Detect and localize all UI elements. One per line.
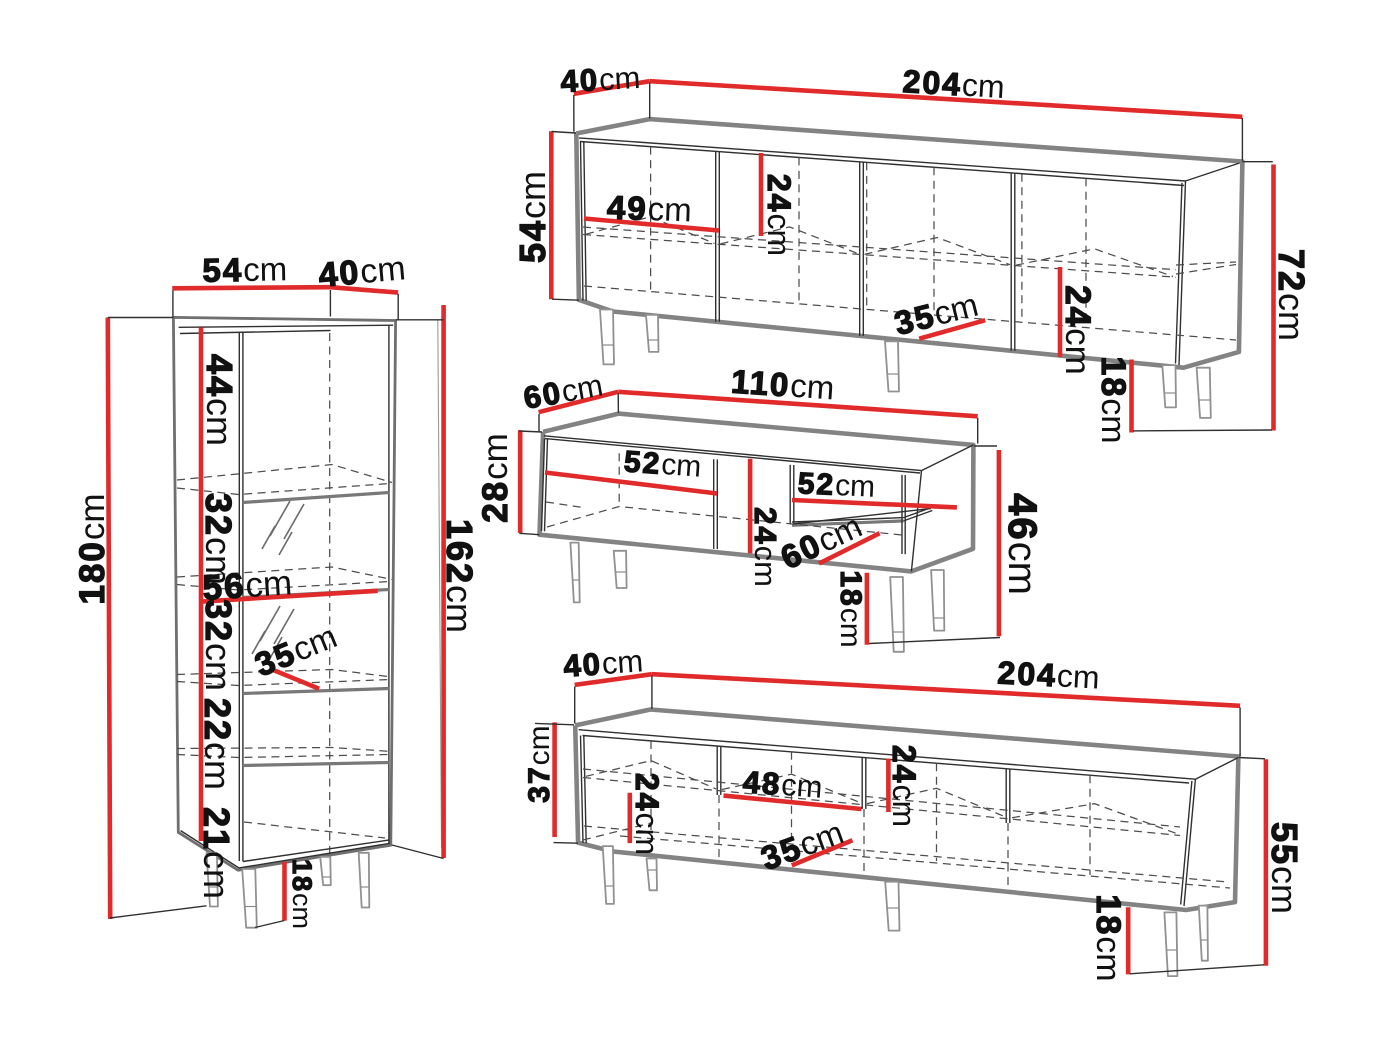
svg-text:54cm: 54cm <box>202 250 287 288</box>
svg-text:18cm: 18cm <box>287 859 317 929</box>
svg-text:44cm: 44cm <box>199 354 240 446</box>
svg-text:46cm: 46cm <box>1000 493 1044 595</box>
svg-text:54cm: 54cm <box>512 171 553 263</box>
svg-text:204cm: 204cm <box>997 654 1101 695</box>
svg-text:24cm: 24cm <box>761 174 797 256</box>
svg-text:22cm: 22cm <box>197 698 238 790</box>
svg-text:204cm: 204cm <box>902 63 1006 105</box>
svg-text:52cm: 52cm <box>623 445 702 483</box>
svg-text:18cm: 18cm <box>1094 356 1132 443</box>
svg-text:55cm: 55cm <box>1264 822 1305 914</box>
svg-text:48cm: 48cm <box>742 764 824 804</box>
svg-text:37cm: 37cm <box>523 725 556 802</box>
svg-text:32cm: 32cm <box>198 599 239 691</box>
svg-text:56cm: 56cm <box>201 563 293 607</box>
svg-text:24cm: 24cm <box>886 745 922 827</box>
svg-text:72cm: 72cm <box>1271 249 1312 341</box>
svg-text:18cm: 18cm <box>1089 894 1127 981</box>
svg-text:180cm: 180cm <box>73 493 112 604</box>
svg-text:18cm: 18cm <box>834 570 867 647</box>
svg-text:40cm: 40cm <box>317 249 407 294</box>
svg-text:49cm: 49cm <box>606 189 692 229</box>
svg-text:21cm: 21cm <box>196 807 237 899</box>
svg-text:52cm: 52cm <box>797 467 876 504</box>
svg-text:28cm: 28cm <box>476 433 515 523</box>
svg-text:40cm: 40cm <box>560 60 642 99</box>
svg-text:162cm: 162cm <box>439 519 480 633</box>
svg-text:40cm: 40cm <box>562 643 644 683</box>
svg-text:24cm: 24cm <box>629 773 665 855</box>
svg-text:24cm: 24cm <box>1058 285 1097 375</box>
svg-text:110cm: 110cm <box>730 363 836 407</box>
